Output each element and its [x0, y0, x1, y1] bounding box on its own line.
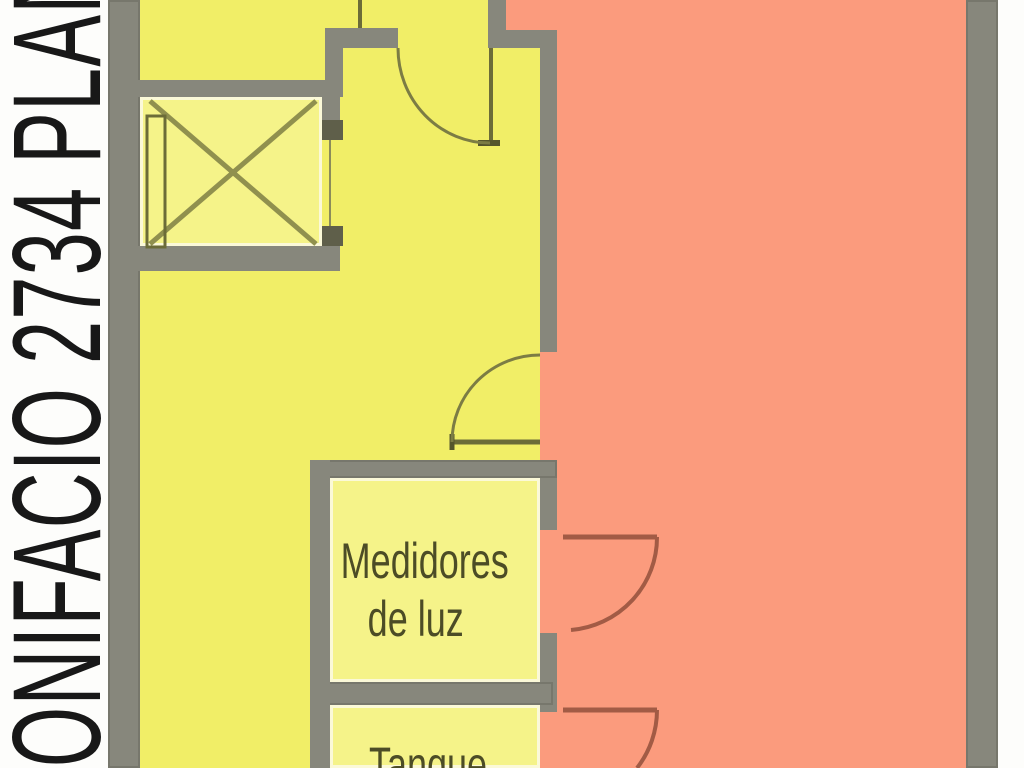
unit-area-salmon: [557, 0, 966, 768]
wall-meters-tank-divider: [310, 682, 553, 705]
wall-right-outer: [966, 0, 998, 768]
wall-shaft-bottom: [137, 246, 340, 271]
wall-party-main: [540, 43, 557, 352]
side-address-label: BONIFACIO 2734 PLANO: [0, 0, 120, 768]
wall-entry-stub-horizontal: [325, 28, 398, 48]
tank-room-label-text: Tanque: [369, 740, 487, 768]
wall-meters-room-top: [310, 460, 557, 478]
wall-shaft-top: [133, 80, 327, 97]
elevator-door-jamb-top: [322, 120, 343, 140]
meters-room-label-line2: de luz: [296, 594, 536, 644]
wall-party-top-vertical: [488, 0, 506, 30]
elevator-door-jamb-bottom: [322, 226, 343, 246]
meters-room-label-text1: Medidores: [341, 536, 509, 586]
meters-room-label-text2: de luz: [368, 594, 464, 644]
elevator-shaft-interior: [140, 97, 322, 246]
floor-plan-canvas: BONIFACIO 2734 PLANO Medidores de luz Ta…: [0, 0, 1024, 768]
meters-room-label-line1: Medidores: [305, 536, 545, 586]
unit-area-salmon-top-notch: [506, 0, 557, 30]
tank-room-label: Tanque: [298, 740, 558, 768]
door-opening-corridor: [540, 352, 557, 460]
wall-shaft-right-upper: [322, 97, 340, 122]
